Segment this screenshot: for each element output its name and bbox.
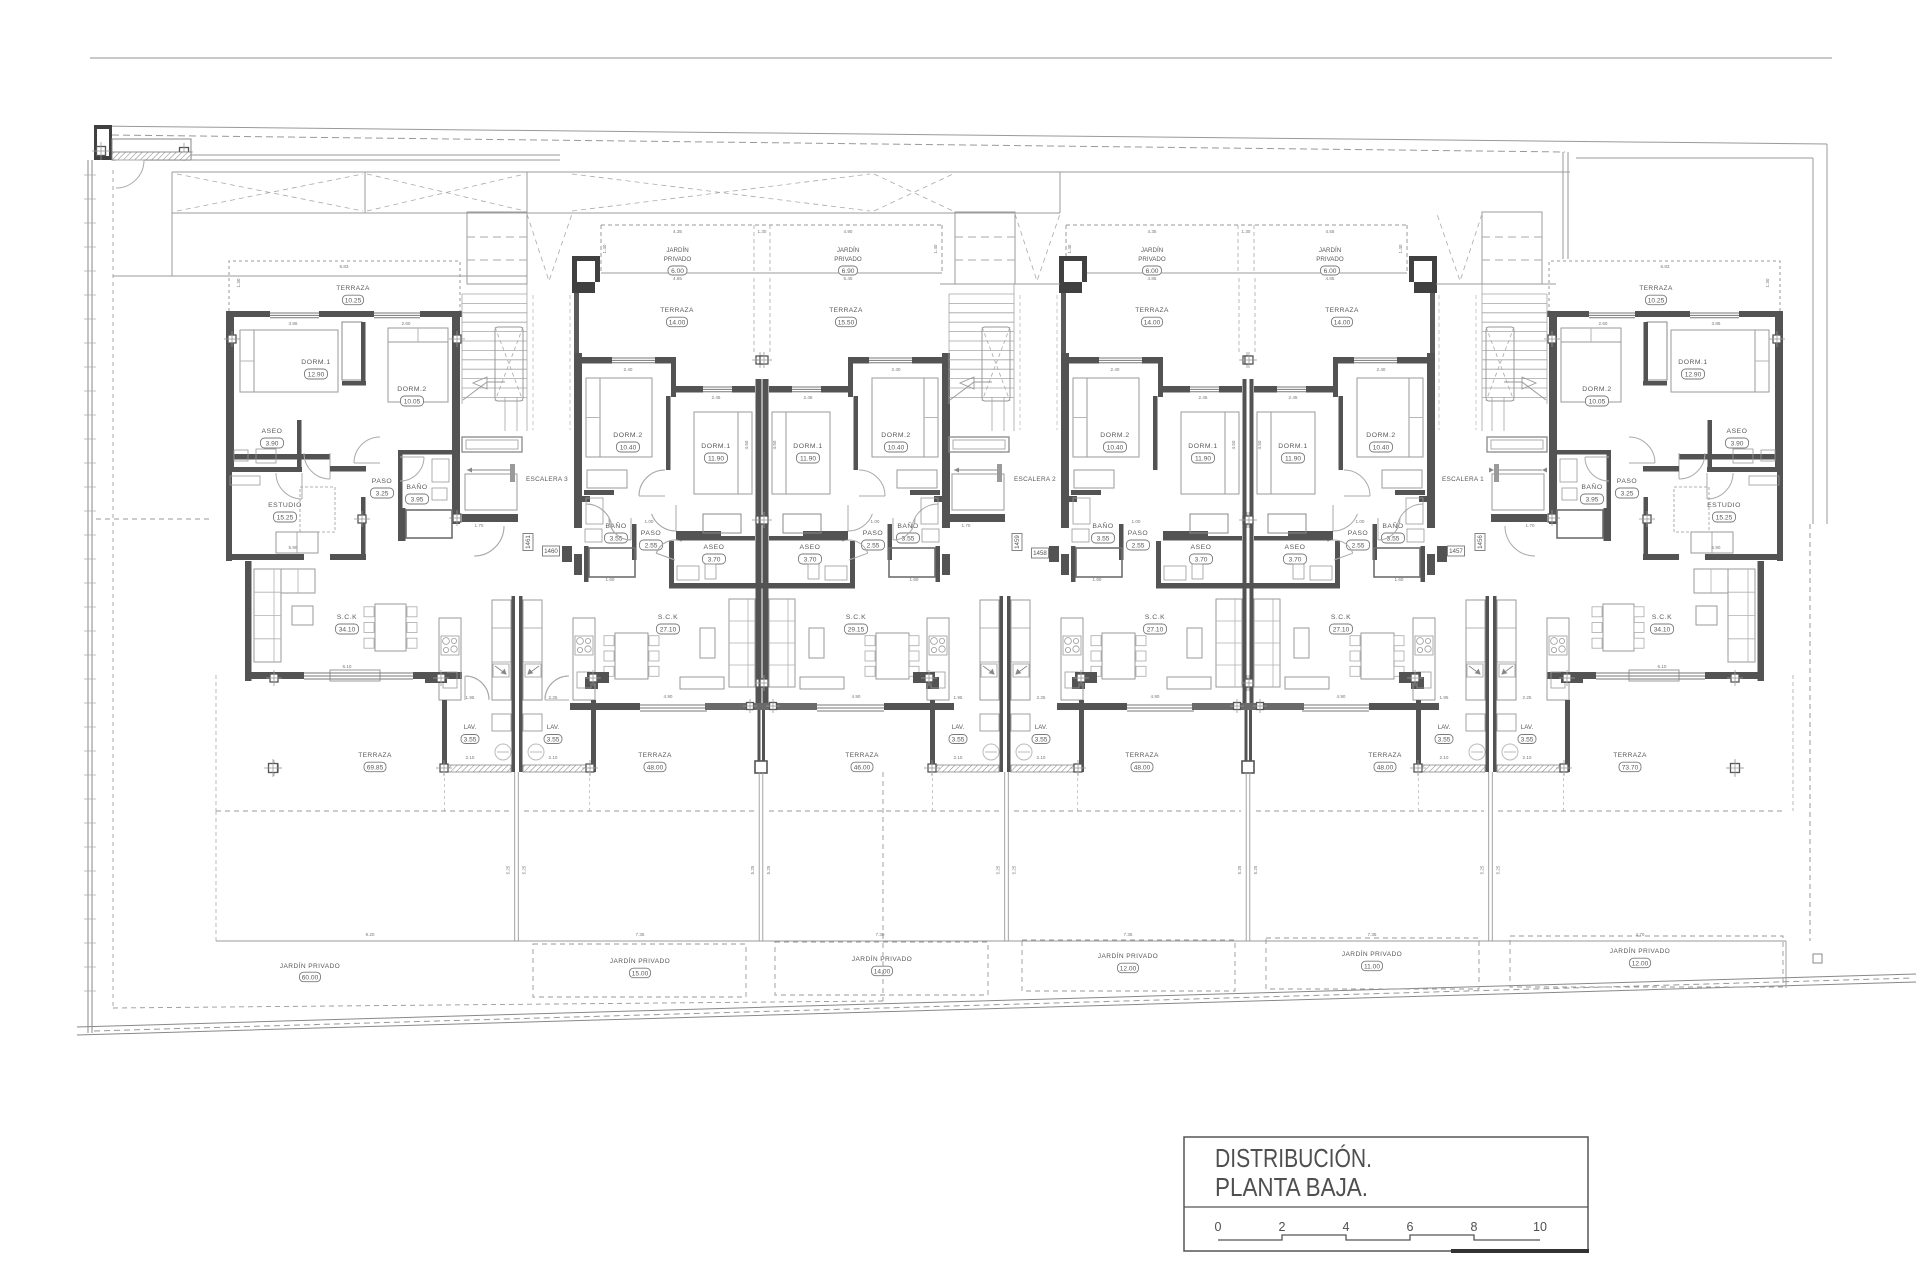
svg-text:S.C.K: S.C.K: [846, 614, 866, 621]
svg-text:4.55: 4.55: [1326, 229, 1335, 234]
svg-text:1461: 1461: [525, 535, 532, 549]
svg-text:3.90: 3.90: [1731, 440, 1744, 447]
svg-text:1.40: 1.40: [1398, 244, 1403, 253]
svg-text:6.10: 6.10: [343, 664, 352, 669]
svg-text:BAÑO: BAÑO: [897, 521, 918, 530]
svg-text:5.90: 5.90: [289, 545, 298, 550]
svg-text:DORM.1: DORM.1: [1278, 443, 1307, 450]
svg-text:DORM.2: DORM.2: [1582, 386, 1611, 393]
svg-text:JARDÍN PRIVADO: JARDÍN PRIVADO: [1342, 949, 1402, 958]
svg-text:BAÑO: BAÑO: [605, 521, 626, 530]
svg-text:5.25: 5.25: [1012, 865, 1017, 874]
svg-text:6.00: 6.00: [1324, 268, 1337, 275]
svg-text:6.83: 6.83: [1661, 264, 1670, 269]
svg-text:1456: 1456: [1477, 535, 1484, 549]
svg-text:TERRAZA: TERRAZA: [1125, 752, 1159, 759]
svg-text:2.10: 2.10: [954, 755, 963, 760]
svg-text:2.10: 2.10: [466, 755, 475, 760]
svg-text:1.00: 1.00: [871, 519, 880, 524]
svg-text:DORM.2: DORM.2: [397, 386, 426, 393]
svg-text:1.30: 1.30: [1242, 229, 1251, 234]
svg-text:TERRAZA: TERRAZA: [638, 752, 672, 759]
svg-text:15.25: 15.25: [277, 514, 294, 521]
svg-text:4.90: 4.90: [852, 694, 861, 699]
svg-text:4.85: 4.85: [673, 276, 682, 281]
svg-text:PASO: PASO: [1617, 478, 1637, 485]
svg-text:7.35: 7.35: [1368, 932, 1377, 937]
svg-text:27.10: 27.10: [1333, 626, 1350, 633]
svg-text:3.55: 3.55: [610, 535, 623, 542]
svg-text:TERRAZA: TERRAZA: [336, 285, 370, 292]
svg-text:12.90: 12.90: [308, 371, 325, 378]
svg-text:4.90: 4.90: [664, 694, 673, 699]
svg-text:48.00: 48.00: [1377, 764, 1394, 771]
svg-text:ASEO: ASEO: [800, 544, 821, 551]
svg-text:2.45: 2.45: [712, 395, 721, 400]
svg-text:1.70: 1.70: [1526, 523, 1535, 528]
svg-text:10.40: 10.40: [1107, 444, 1124, 451]
svg-text:TERRAZA: TERRAZA: [660, 307, 694, 314]
svg-text:10.40: 10.40: [888, 444, 905, 451]
svg-text:S.C.K: S.C.K: [337, 614, 357, 621]
svg-text:10.40: 10.40: [620, 444, 637, 451]
svg-text:JARDÍN PRIVADO: JARDÍN PRIVADO: [1098, 951, 1158, 960]
svg-text:3.25: 3.25: [376, 490, 389, 497]
svg-text:3.25: 3.25: [1621, 490, 1634, 497]
svg-text:10.40: 10.40: [1373, 444, 1390, 451]
svg-text:3.55: 3.55: [547, 736, 560, 743]
svg-text:DORM.2: DORM.2: [1100, 432, 1129, 439]
svg-text:5.25: 5.25: [522, 865, 527, 874]
svg-text:1.60: 1.60: [1093, 577, 1102, 582]
svg-text:PRIVADO: PRIVADO: [1138, 256, 1166, 263]
svg-text:JARDÍN: JARDÍN: [666, 247, 688, 254]
svg-text:3.70: 3.70: [708, 556, 721, 563]
svg-text:10.25: 10.25: [1648, 297, 1665, 304]
svg-text:14.00: 14.00: [669, 319, 686, 326]
svg-text:27.10: 27.10: [1147, 626, 1164, 633]
svg-text:TERRAZA: TERRAZA: [829, 307, 863, 314]
svg-text:1459: 1459: [1014, 535, 1021, 549]
svg-text:LAV.: LAV.: [1438, 724, 1451, 731]
svg-text:11.90: 11.90: [800, 455, 816, 462]
svg-text:2.55: 2.55: [645, 542, 658, 549]
svg-text:3.95: 3.95: [411, 496, 424, 503]
svg-text:1458: 1458: [1033, 550, 1047, 557]
svg-text:7.35: 7.35: [636, 932, 645, 937]
svg-text:3.55: 3.55: [1521, 736, 1534, 743]
svg-text:2.55: 2.55: [1132, 542, 1145, 549]
svg-text:11.90: 11.90: [708, 455, 724, 462]
svg-text:4.90: 4.90: [1151, 694, 1160, 699]
svg-text:2.60: 2.60: [1599, 321, 1608, 326]
svg-text:4.90: 4.90: [1337, 694, 1346, 699]
svg-text:JARDÍN PRIVADO: JARDÍN PRIVADO: [610, 956, 670, 965]
svg-text:TERRAZA: TERRAZA: [1135, 307, 1169, 314]
svg-text:TERRAZA: TERRAZA: [845, 752, 879, 759]
svg-text:14.00: 14.00: [1334, 319, 1351, 326]
svg-text:LAV.: LAV.: [1521, 724, 1534, 731]
svg-text:ASEO: ASEO: [1191, 544, 1212, 551]
svg-text:S.C.K: S.C.K: [1331, 614, 1351, 621]
svg-text:2.40: 2.40: [892, 367, 901, 372]
svg-text:LAV.: LAV.: [1035, 724, 1048, 731]
svg-text:1.70: 1.70: [962, 523, 971, 528]
svg-text:11.00: 11.00: [1364, 963, 1380, 970]
svg-text:2.40: 2.40: [1111, 367, 1120, 372]
svg-text:DORM.2: DORM.2: [613, 432, 642, 439]
svg-text:1.30: 1.30: [236, 278, 241, 287]
svg-text:3.70: 3.70: [1195, 556, 1208, 563]
svg-text:S.C.K: S.C.K: [1145, 614, 1165, 621]
svg-text:10.05: 10.05: [1589, 398, 1606, 405]
svg-text:ESCALERA 2: ESCALERA 2: [1014, 476, 1056, 483]
svg-text:ESCALERA 3: ESCALERA 3: [526, 476, 568, 483]
svg-text:2.40: 2.40: [624, 367, 633, 372]
svg-text:TERRAZA: TERRAZA: [358, 752, 392, 759]
svg-text:2.10: 2.10: [549, 755, 558, 760]
svg-text:ASEO: ASEO: [704, 544, 725, 551]
svg-text:PRIVADO: PRIVADO: [664, 256, 692, 263]
svg-text:2.25: 2.25: [1037, 695, 1046, 700]
svg-text:46.00: 46.00: [854, 764, 871, 771]
svg-text:2.25: 2.25: [549, 695, 558, 700]
svg-text:48.00: 48.00: [647, 764, 664, 771]
svg-text:3.55: 3.55: [902, 535, 915, 542]
svg-text:3.55: 3.55: [1097, 535, 1110, 542]
svg-text:1.60: 1.60: [1395, 577, 1404, 582]
svg-text:ASEO: ASEO: [1727, 428, 1748, 435]
svg-text:BAÑO: BAÑO: [1581, 482, 1602, 491]
svg-text:DORM.1: DORM.1: [701, 443, 730, 450]
svg-text:5.45: 5.45: [844, 276, 853, 281]
svg-text:DORM.2: DORM.2: [881, 432, 910, 439]
svg-text:2: 2: [1279, 1220, 1286, 1234]
svg-text:TERRAZA: TERRAZA: [1368, 752, 1402, 759]
svg-text:4.35: 4.35: [1148, 229, 1157, 234]
svg-text:1460: 1460: [544, 548, 558, 555]
svg-text:ESCALERA 1: ESCALERA 1: [1442, 476, 1484, 483]
svg-text:2.45: 2.45: [1199, 395, 1208, 400]
svg-text:1.30: 1.30: [1765, 278, 1770, 287]
svg-text:3.70: 3.70: [1289, 556, 1302, 563]
svg-text:ASEO: ASEO: [1285, 544, 1306, 551]
svg-text:LAV.: LAV.: [547, 724, 560, 731]
svg-text:PRIVADO: PRIVADO: [1316, 256, 1344, 263]
svg-text:1.60: 1.60: [910, 577, 919, 582]
svg-text:PASO: PASO: [641, 530, 661, 537]
svg-text:4: 4: [1343, 1220, 1350, 1234]
svg-text:PASO: PASO: [863, 530, 883, 537]
svg-text:3.55: 3.55: [1438, 736, 1451, 743]
svg-text:6.00: 6.00: [671, 268, 684, 275]
svg-text:1.95: 1.95: [954, 695, 963, 700]
svg-text:3.55: 3.55: [464, 736, 477, 743]
svg-text:3.55: 3.55: [1035, 736, 1048, 743]
svg-text:4.50: 4.50: [1257, 440, 1262, 449]
svg-text:DORM.1: DORM.1: [1678, 359, 1707, 366]
svg-text:2.10: 2.10: [1523, 755, 1532, 760]
svg-text:1.40: 1.40: [933, 244, 938, 253]
svg-text:JARDÍN: JARDÍN: [1141, 247, 1163, 254]
svg-text:34.10: 34.10: [339, 626, 356, 633]
svg-text:1.40: 1.40: [1067, 244, 1072, 253]
svg-text:5.25: 5.25: [750, 865, 755, 874]
svg-text:5.25: 5.25: [506, 865, 511, 874]
svg-text:2.40: 2.40: [1377, 367, 1386, 372]
svg-text:TERRAZA: TERRAZA: [1613, 752, 1647, 759]
svg-text:6.90: 6.90: [842, 268, 855, 275]
svg-text:12.00: 12.00: [1632, 960, 1649, 967]
svg-text:DORM.1: DORM.1: [1188, 443, 1217, 450]
svg-text:JARDÍN: JARDÍN: [1319, 247, 1341, 254]
svg-text:2.25: 2.25: [1523, 695, 1532, 700]
svg-text:69.85: 69.85: [367, 764, 384, 771]
svg-text:DORM.2: DORM.2: [1366, 432, 1395, 439]
svg-text:LAV.: LAV.: [464, 724, 477, 731]
svg-text:1.40: 1.40: [602, 244, 607, 253]
svg-text:6.00: 6.00: [1146, 268, 1159, 275]
svg-text:3.55: 3.55: [1387, 535, 1400, 542]
svg-text:S.C.K: S.C.K: [1652, 614, 1672, 621]
svg-text:1.95: 1.95: [466, 695, 475, 700]
svg-text:5.25: 5.25: [1237, 865, 1242, 874]
svg-text:S.C.K: S.C.K: [658, 614, 678, 621]
svg-text:PASO: PASO: [1128, 530, 1148, 537]
svg-text:73.70: 73.70: [1622, 764, 1639, 771]
svg-text:JARDÍN: JARDÍN: [837, 247, 859, 254]
svg-text:2.55: 2.55: [1352, 542, 1365, 549]
svg-text:10: 10: [1533, 1220, 1547, 1234]
svg-text:1.60: 1.60: [606, 577, 615, 582]
svg-text:3.95: 3.95: [1586, 496, 1599, 503]
svg-text:8: 8: [1471, 1220, 1478, 1234]
svg-text:15.50: 15.50: [838, 319, 855, 326]
svg-text:3.55: 3.55: [952, 736, 965, 743]
svg-text:1457: 1457: [1449, 548, 1463, 555]
svg-text:TERRAZA: TERRAZA: [1639, 285, 1673, 292]
svg-text:5.25: 5.25: [1496, 865, 1501, 874]
svg-text:DORM.1: DORM.1: [793, 443, 822, 450]
svg-text:9.20: 9.20: [366, 932, 375, 937]
svg-text:1.00: 1.00: [1132, 519, 1141, 524]
svg-text:2.45: 2.45: [1289, 395, 1298, 400]
svg-text:4.85: 4.85: [1148, 276, 1157, 281]
svg-text:4.90: 4.90: [844, 229, 853, 234]
svg-text:10.05: 10.05: [404, 398, 421, 405]
svg-text:14.00: 14.00: [1144, 319, 1161, 326]
svg-text:2.60: 2.60: [402, 321, 411, 326]
svg-text:1.95: 1.95: [1440, 695, 1449, 700]
svg-text:3.86: 3.86: [289, 321, 298, 326]
svg-text:11.90: 11.90: [1195, 455, 1211, 462]
svg-text:LAV.: LAV.: [952, 724, 965, 731]
svg-text:2.10: 2.10: [1037, 755, 1046, 760]
svg-text:JARDÍN PRIVADO: JARDÍN PRIVADO: [280, 961, 340, 970]
svg-text:4.85: 4.85: [1326, 276, 1335, 281]
svg-text:DISTRIBUCIÓN.: DISTRIBUCIÓN.: [1215, 1143, 1372, 1173]
svg-text:15.00: 15.00: [632, 970, 649, 977]
svg-text:TERRAZA: TERRAZA: [1325, 307, 1359, 314]
svg-text:1.00: 1.00: [645, 519, 654, 524]
svg-text:6.83: 6.83: [340, 264, 349, 269]
svg-text:7.35: 7.35: [1124, 932, 1133, 937]
svg-text:PRIVADO: PRIVADO: [834, 256, 862, 263]
svg-text:29.15: 29.15: [848, 626, 865, 633]
svg-text:5.25: 5.25: [1253, 865, 1258, 874]
svg-text:PASO: PASO: [1348, 530, 1368, 537]
svg-text:BAÑO: BAÑO: [1382, 521, 1403, 530]
svg-text:10.25: 10.25: [345, 297, 362, 304]
svg-text:3.86: 3.86: [1712, 321, 1721, 326]
svg-text:ASEO: ASEO: [262, 428, 283, 435]
svg-text:4.50: 4.50: [772, 440, 777, 449]
svg-text:1.70: 1.70: [475, 523, 484, 528]
svg-text:6: 6: [1407, 1220, 1414, 1234]
svg-text:14.00: 14.00: [874, 968, 891, 975]
svg-text:5.25: 5.25: [1480, 865, 1485, 874]
svg-text:15.25: 15.25: [1716, 514, 1733, 521]
svg-text:1.30: 1.30: [758, 229, 767, 234]
svg-text:1.00: 1.00: [1356, 519, 1365, 524]
svg-text:BAÑO: BAÑO: [406, 482, 427, 491]
svg-text:5.90: 5.90: [1712, 545, 1721, 550]
svg-text:34.10: 34.10: [1654, 626, 1671, 633]
svg-text:4.35: 4.35: [673, 229, 682, 234]
svg-text:2.10: 2.10: [1440, 755, 1449, 760]
svg-text:3.90: 3.90: [266, 440, 279, 447]
svg-text:48.00: 48.00: [1134, 764, 1151, 771]
svg-text:6.10: 6.10: [1658, 664, 1667, 669]
svg-text:ESTUDIO: ESTUDIO: [1707, 502, 1741, 509]
svg-text:2.45: 2.45: [804, 395, 813, 400]
svg-text:PLANTA BAJA.: PLANTA BAJA.: [1215, 1172, 1368, 1202]
svg-text:BAÑO: BAÑO: [1092, 521, 1113, 530]
svg-text:JARDÍN PRIVADO: JARDÍN PRIVADO: [852, 954, 912, 963]
svg-text:12.90: 12.90: [1685, 371, 1702, 378]
svg-text:PASO: PASO: [372, 478, 392, 485]
svg-text:JARDÍN PRIVADO: JARDÍN PRIVADO: [1610, 946, 1670, 955]
svg-text:3.70: 3.70: [804, 556, 817, 563]
svg-text:DORM.1: DORM.1: [301, 359, 330, 366]
svg-text:11.90: 11.90: [1285, 455, 1301, 462]
svg-text:2.55: 2.55: [867, 542, 880, 549]
svg-text:60.00: 60.00: [302, 974, 319, 981]
svg-text:7.30: 7.30: [876, 932, 885, 937]
svg-text:ESTUDIO: ESTUDIO: [268, 502, 302, 509]
svg-text:4.50: 4.50: [1231, 440, 1236, 449]
svg-text:4.50: 4.50: [744, 440, 749, 449]
svg-text:5.25: 5.25: [996, 865, 1001, 874]
svg-text:27.10: 27.10: [660, 626, 677, 633]
svg-text:5.25: 5.25: [766, 865, 771, 874]
svg-text:0: 0: [1215, 1220, 1222, 1234]
svg-text:12.00: 12.00: [1120, 965, 1137, 972]
